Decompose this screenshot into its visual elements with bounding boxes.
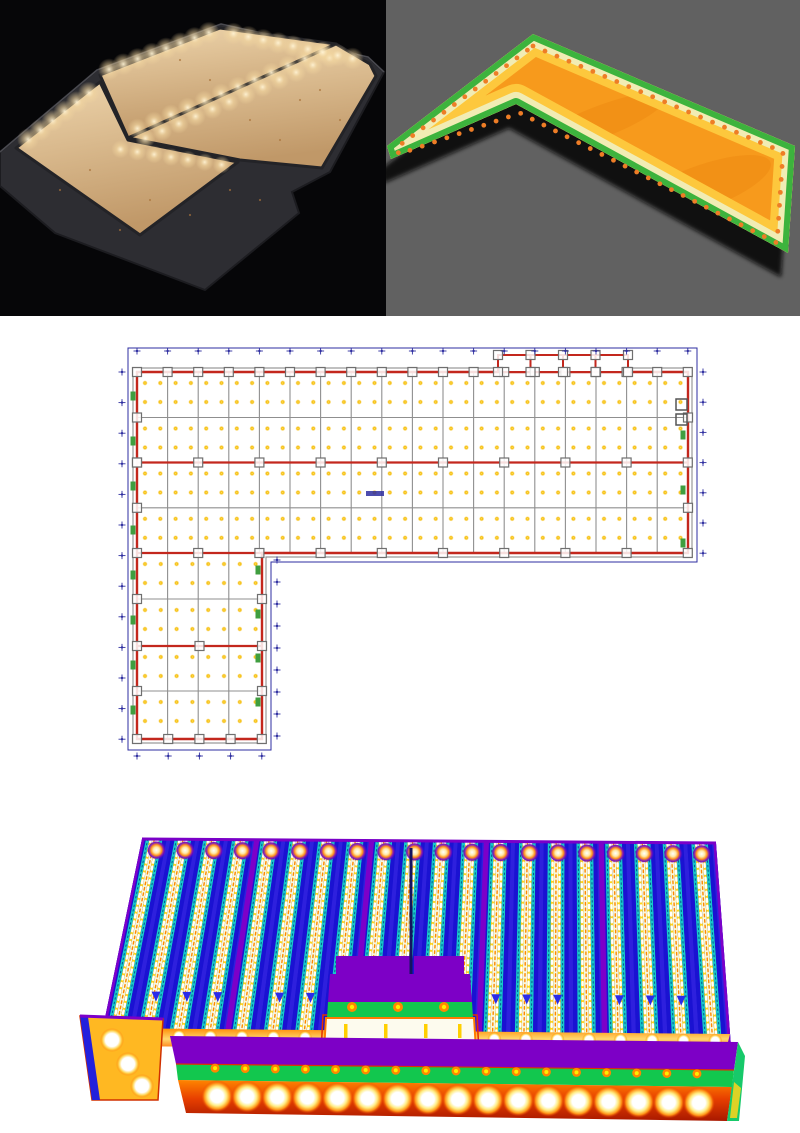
false-color-3d-warehouse-graphic (0, 820, 800, 1133)
false-color-3d-warehouse-panel (0, 820, 800, 1133)
dark-3d-render-graphic (0, 0, 386, 316)
cad-floor-plan-panel (0, 316, 800, 820)
dark-3d-render-panel (0, 0, 386, 316)
false-color-slab-panel (386, 0, 800, 316)
false-color-slab-graphic (386, 0, 800, 316)
cad-floor-plan-graphic (0, 316, 800, 820)
